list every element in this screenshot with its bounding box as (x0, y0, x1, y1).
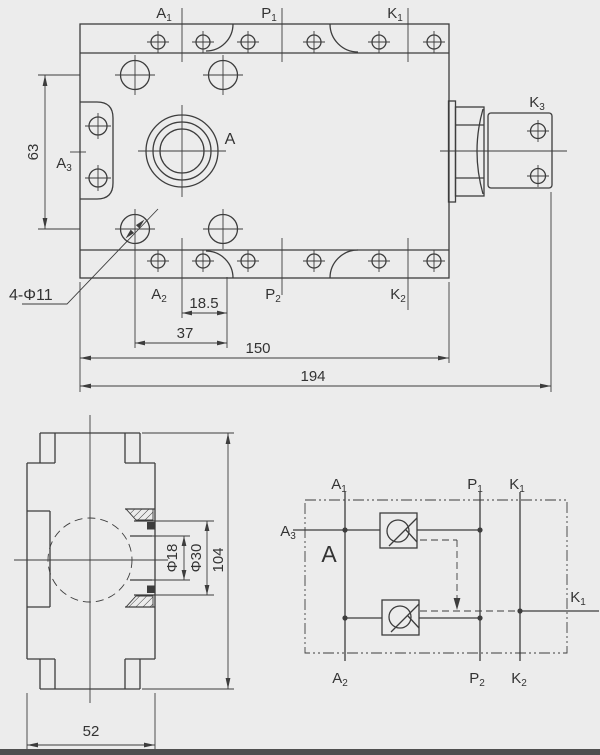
dim-d30-text: Φ30 (188, 544, 205, 573)
label-a: A (225, 131, 236, 148)
drawing-sheet: 63 4-Φ11 18.5 37 150 (0, 0, 600, 755)
valve-block-drawing: 63 4-Φ11 18.5 37 150 (0, 0, 600, 755)
seal-bottom (147, 586, 155, 594)
callout-4xd11-text: 4-Φ11 (9, 287, 53, 304)
dim-18-5-text: 18.5 (189, 295, 218, 312)
dim-194-text: 194 (300, 368, 325, 385)
dim-37-text: 37 (177, 325, 194, 342)
dim-150-text: 150 (245, 340, 270, 357)
dim-104-text: 104 (210, 547, 227, 572)
dim-d18-text: Φ18 (164, 544, 181, 573)
dim-52-text: 52 (83, 723, 100, 740)
bottom-border-bar (0, 749, 600, 755)
schematic-label-a-marker: A (321, 541, 337, 567)
seal-top (147, 522, 155, 530)
dim-63-text: 63 (25, 144, 42, 161)
